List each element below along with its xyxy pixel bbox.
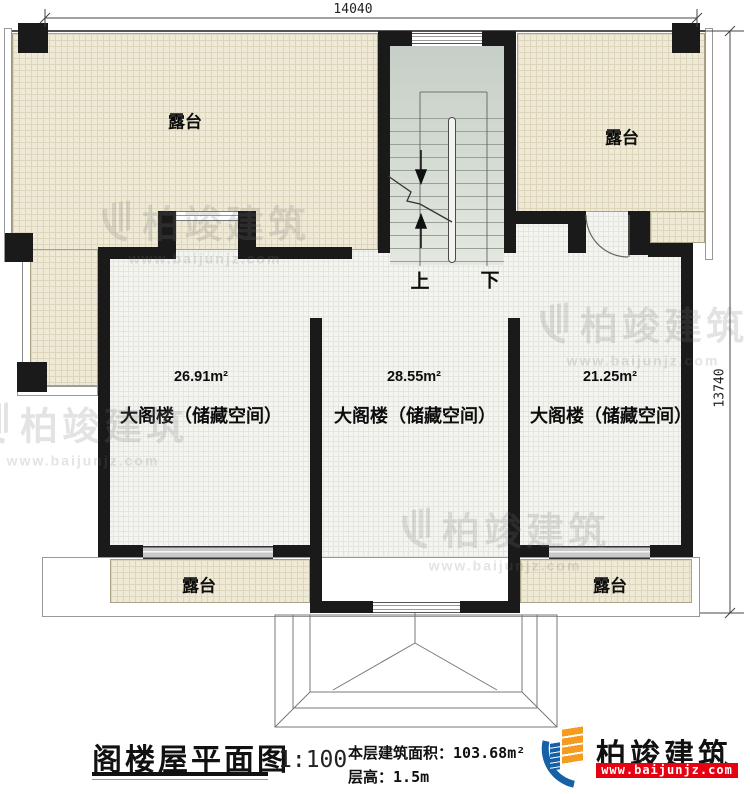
watermark: 柏竣建筑 www.baijunjz.com bbox=[538, 296, 748, 369]
floor-area-line: 本层建筑面积：103.68m² bbox=[348, 742, 525, 763]
dimension-top: 14040 bbox=[333, 2, 372, 17]
column bbox=[17, 362, 47, 392]
terrace-label-bottom-right: 露台 bbox=[593, 572, 627, 597]
wall bbox=[378, 31, 390, 253]
title-underline-thin bbox=[92, 779, 268, 780]
watermark-name: 柏竣建筑 bbox=[580, 296, 748, 351]
room-middle-area: 28.55m² bbox=[387, 369, 441, 385]
room-middle-label: 大阁楼（储藏空间） bbox=[334, 402, 496, 428]
stair-up-label: 上 bbox=[410, 267, 429, 294]
column bbox=[5, 233, 33, 262]
wall bbox=[628, 211, 650, 255]
brand-logo-icon bbox=[538, 727, 590, 787]
watermark-url: www.baijunjz.com bbox=[100, 251, 310, 267]
room-left-area: 26.91m² bbox=[174, 369, 228, 385]
floor-area-value: 103.68m² bbox=[453, 744, 525, 762]
watermark-name: 柏竣建筑 bbox=[20, 396, 188, 451]
wall bbox=[482, 31, 516, 46]
floor-area-label: 本层建筑面积： bbox=[348, 745, 453, 762]
terrace-label-top-right: 露台 bbox=[605, 124, 639, 149]
wall bbox=[310, 601, 373, 613]
watermark-url: www.baijunjz.com bbox=[0, 453, 188, 469]
drawing-scale: 1:100 bbox=[278, 747, 347, 773]
outer-wall-top-line bbox=[12, 30, 705, 32]
watermark-name: 柏竣建筑 bbox=[442, 501, 610, 556]
watermark-logo-icon bbox=[100, 201, 134, 241]
stair-railing bbox=[448, 117, 456, 263]
watermark-name: 柏竣建筑 bbox=[142, 194, 310, 249]
watermark-logo-icon bbox=[538, 303, 572, 343]
dimension-right: 13740 bbox=[713, 368, 728, 407]
middle-room-window bbox=[373, 602, 460, 613]
terrace-parapet-left bbox=[4, 28, 12, 262]
watermark-url: www.baijunjz.com bbox=[400, 558, 610, 574]
terrace-parapet-left-lower bbox=[22, 262, 23, 366]
left-room-window bbox=[143, 546, 273, 559]
watermark: 柏竣建筑 www.baijunjz.com bbox=[0, 396, 188, 469]
watermark-logo-icon bbox=[0, 403, 12, 443]
stair-down-label: 下 bbox=[480, 266, 499, 293]
floor-plan-canvas: 14040 13740 露台 露台 露台 露台 26.91m² 大阁楼（储藏空间… bbox=[0, 0, 750, 794]
room-right-label: 大阁楼（储藏空间） bbox=[530, 402, 692, 428]
terrace-label-bottom-left: 露台 bbox=[182, 572, 216, 597]
wall bbox=[568, 211, 586, 253]
floor-height-value: 1.5m bbox=[393, 768, 429, 786]
terrace-top-right bbox=[517, 33, 705, 212]
stairwell-window bbox=[412, 33, 482, 44]
brand-url: www.baijunjz.com bbox=[596, 763, 738, 778]
watermark: 柏竣建筑 www.baijunjz.com bbox=[100, 194, 310, 267]
watermark: 柏竣建筑 www.baijunjz.com bbox=[400, 501, 610, 574]
wall bbox=[650, 545, 693, 557]
wall bbox=[508, 211, 572, 224]
wall bbox=[98, 545, 143, 557]
terrace-parapet-right bbox=[705, 28, 713, 260]
column bbox=[672, 23, 700, 53]
wall bbox=[378, 31, 412, 46]
floor-height-label: 层高： bbox=[348, 769, 393, 786]
watermark-logo-icon bbox=[400, 508, 434, 548]
room-right-area: 21.25m² bbox=[583, 369, 637, 385]
watermark-url: www.baijunjz.com bbox=[538, 353, 748, 369]
terrace-top-right-corner bbox=[650, 212, 705, 243]
terrace-label-top-left: 露台 bbox=[168, 108, 202, 133]
wall bbox=[681, 243, 693, 557]
wall bbox=[310, 318, 322, 613]
column bbox=[18, 23, 48, 53]
floor-height-line: 层高：1.5m bbox=[348, 766, 429, 787]
title-underline bbox=[92, 772, 268, 776]
stair-treads bbox=[390, 118, 504, 264]
